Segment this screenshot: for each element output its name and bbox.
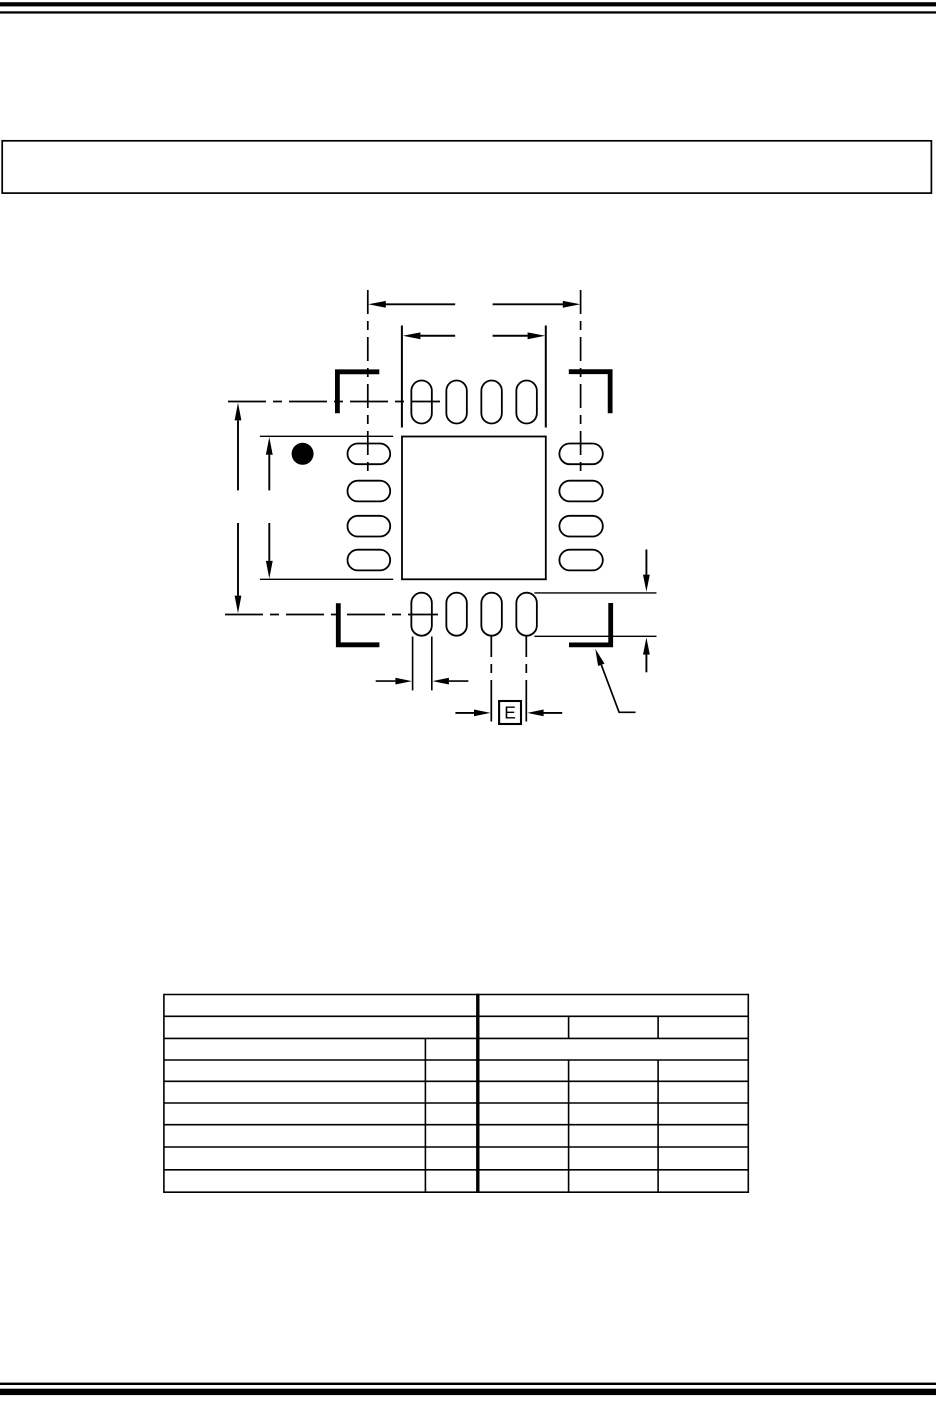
svg-text:E: E [504,703,516,723]
